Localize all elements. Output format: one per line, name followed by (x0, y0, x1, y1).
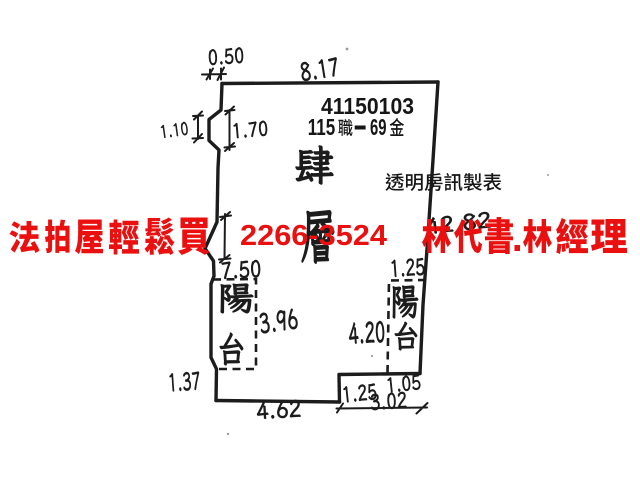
svg-text:2266-3524: 2266-3524 (240, 220, 387, 252)
svg-text:69: 69 (370, 114, 387, 140)
svg-text:115: 115 (308, 114, 336, 140)
